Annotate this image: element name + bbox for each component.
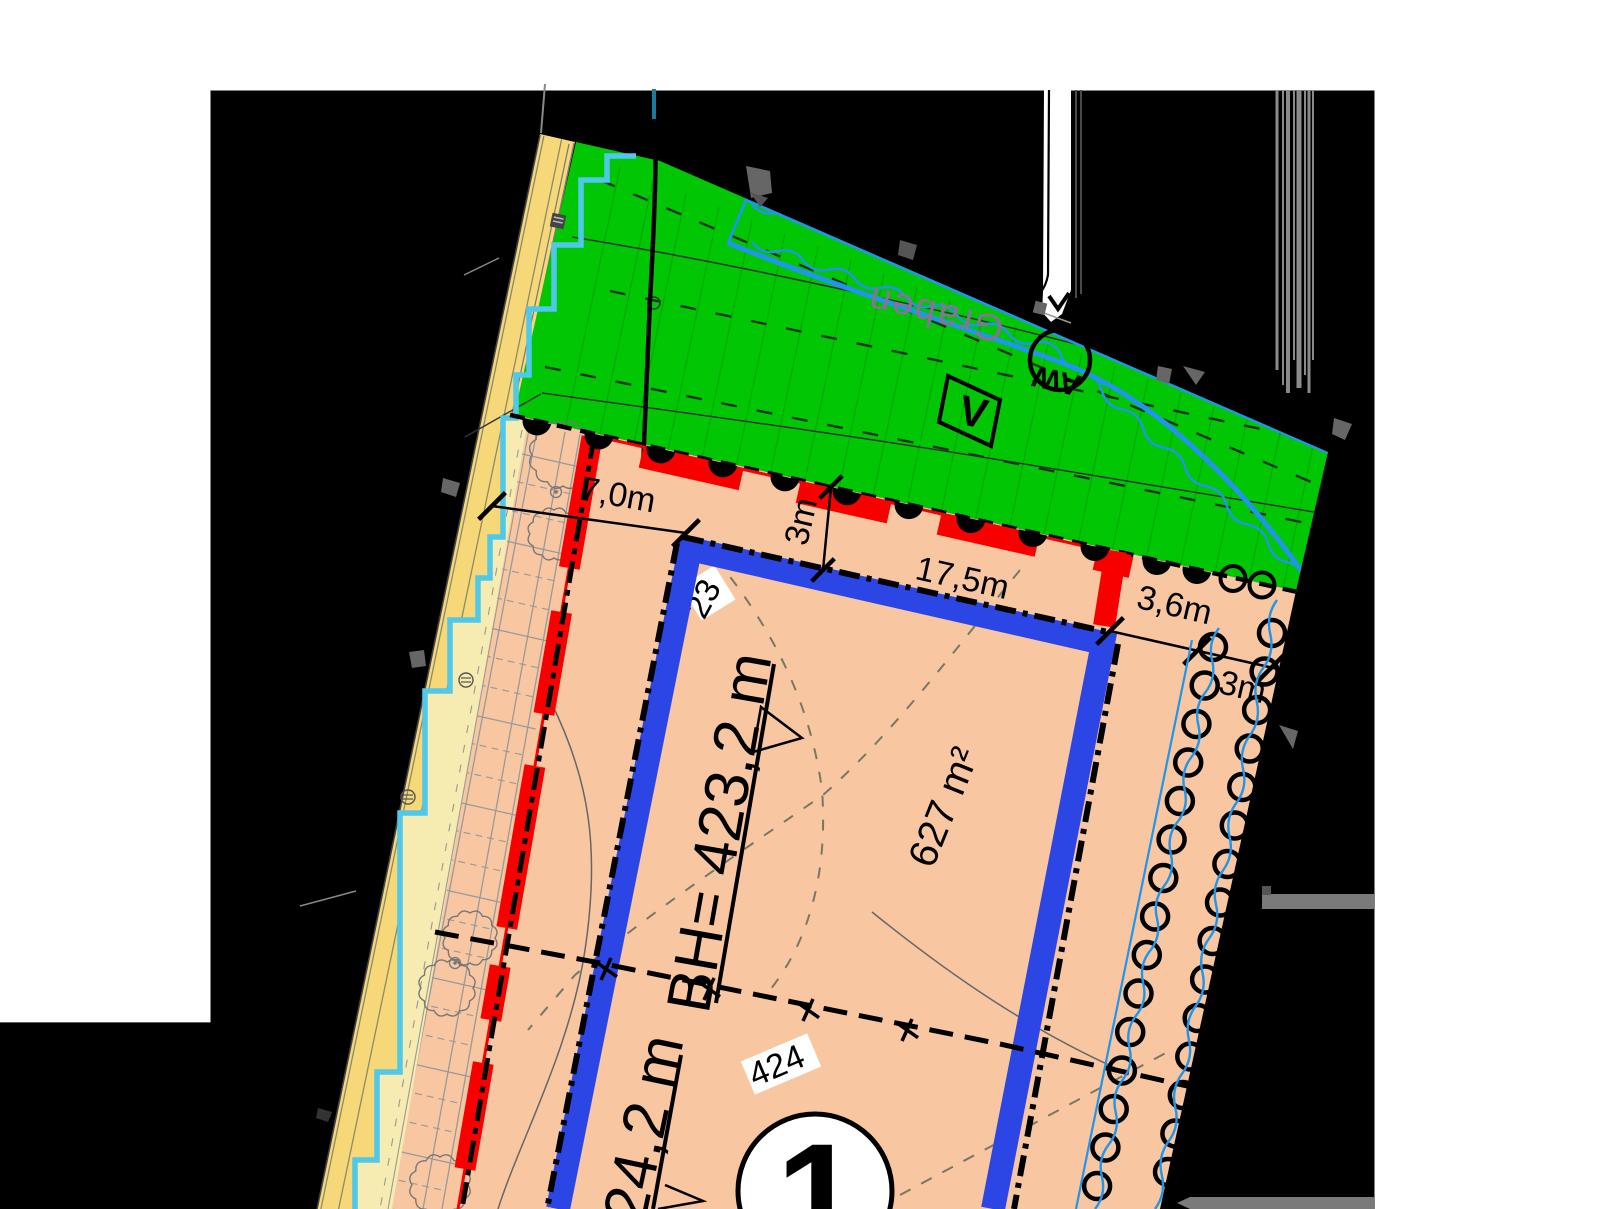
svg-text:1: 1	[776, 1112, 859, 1209]
